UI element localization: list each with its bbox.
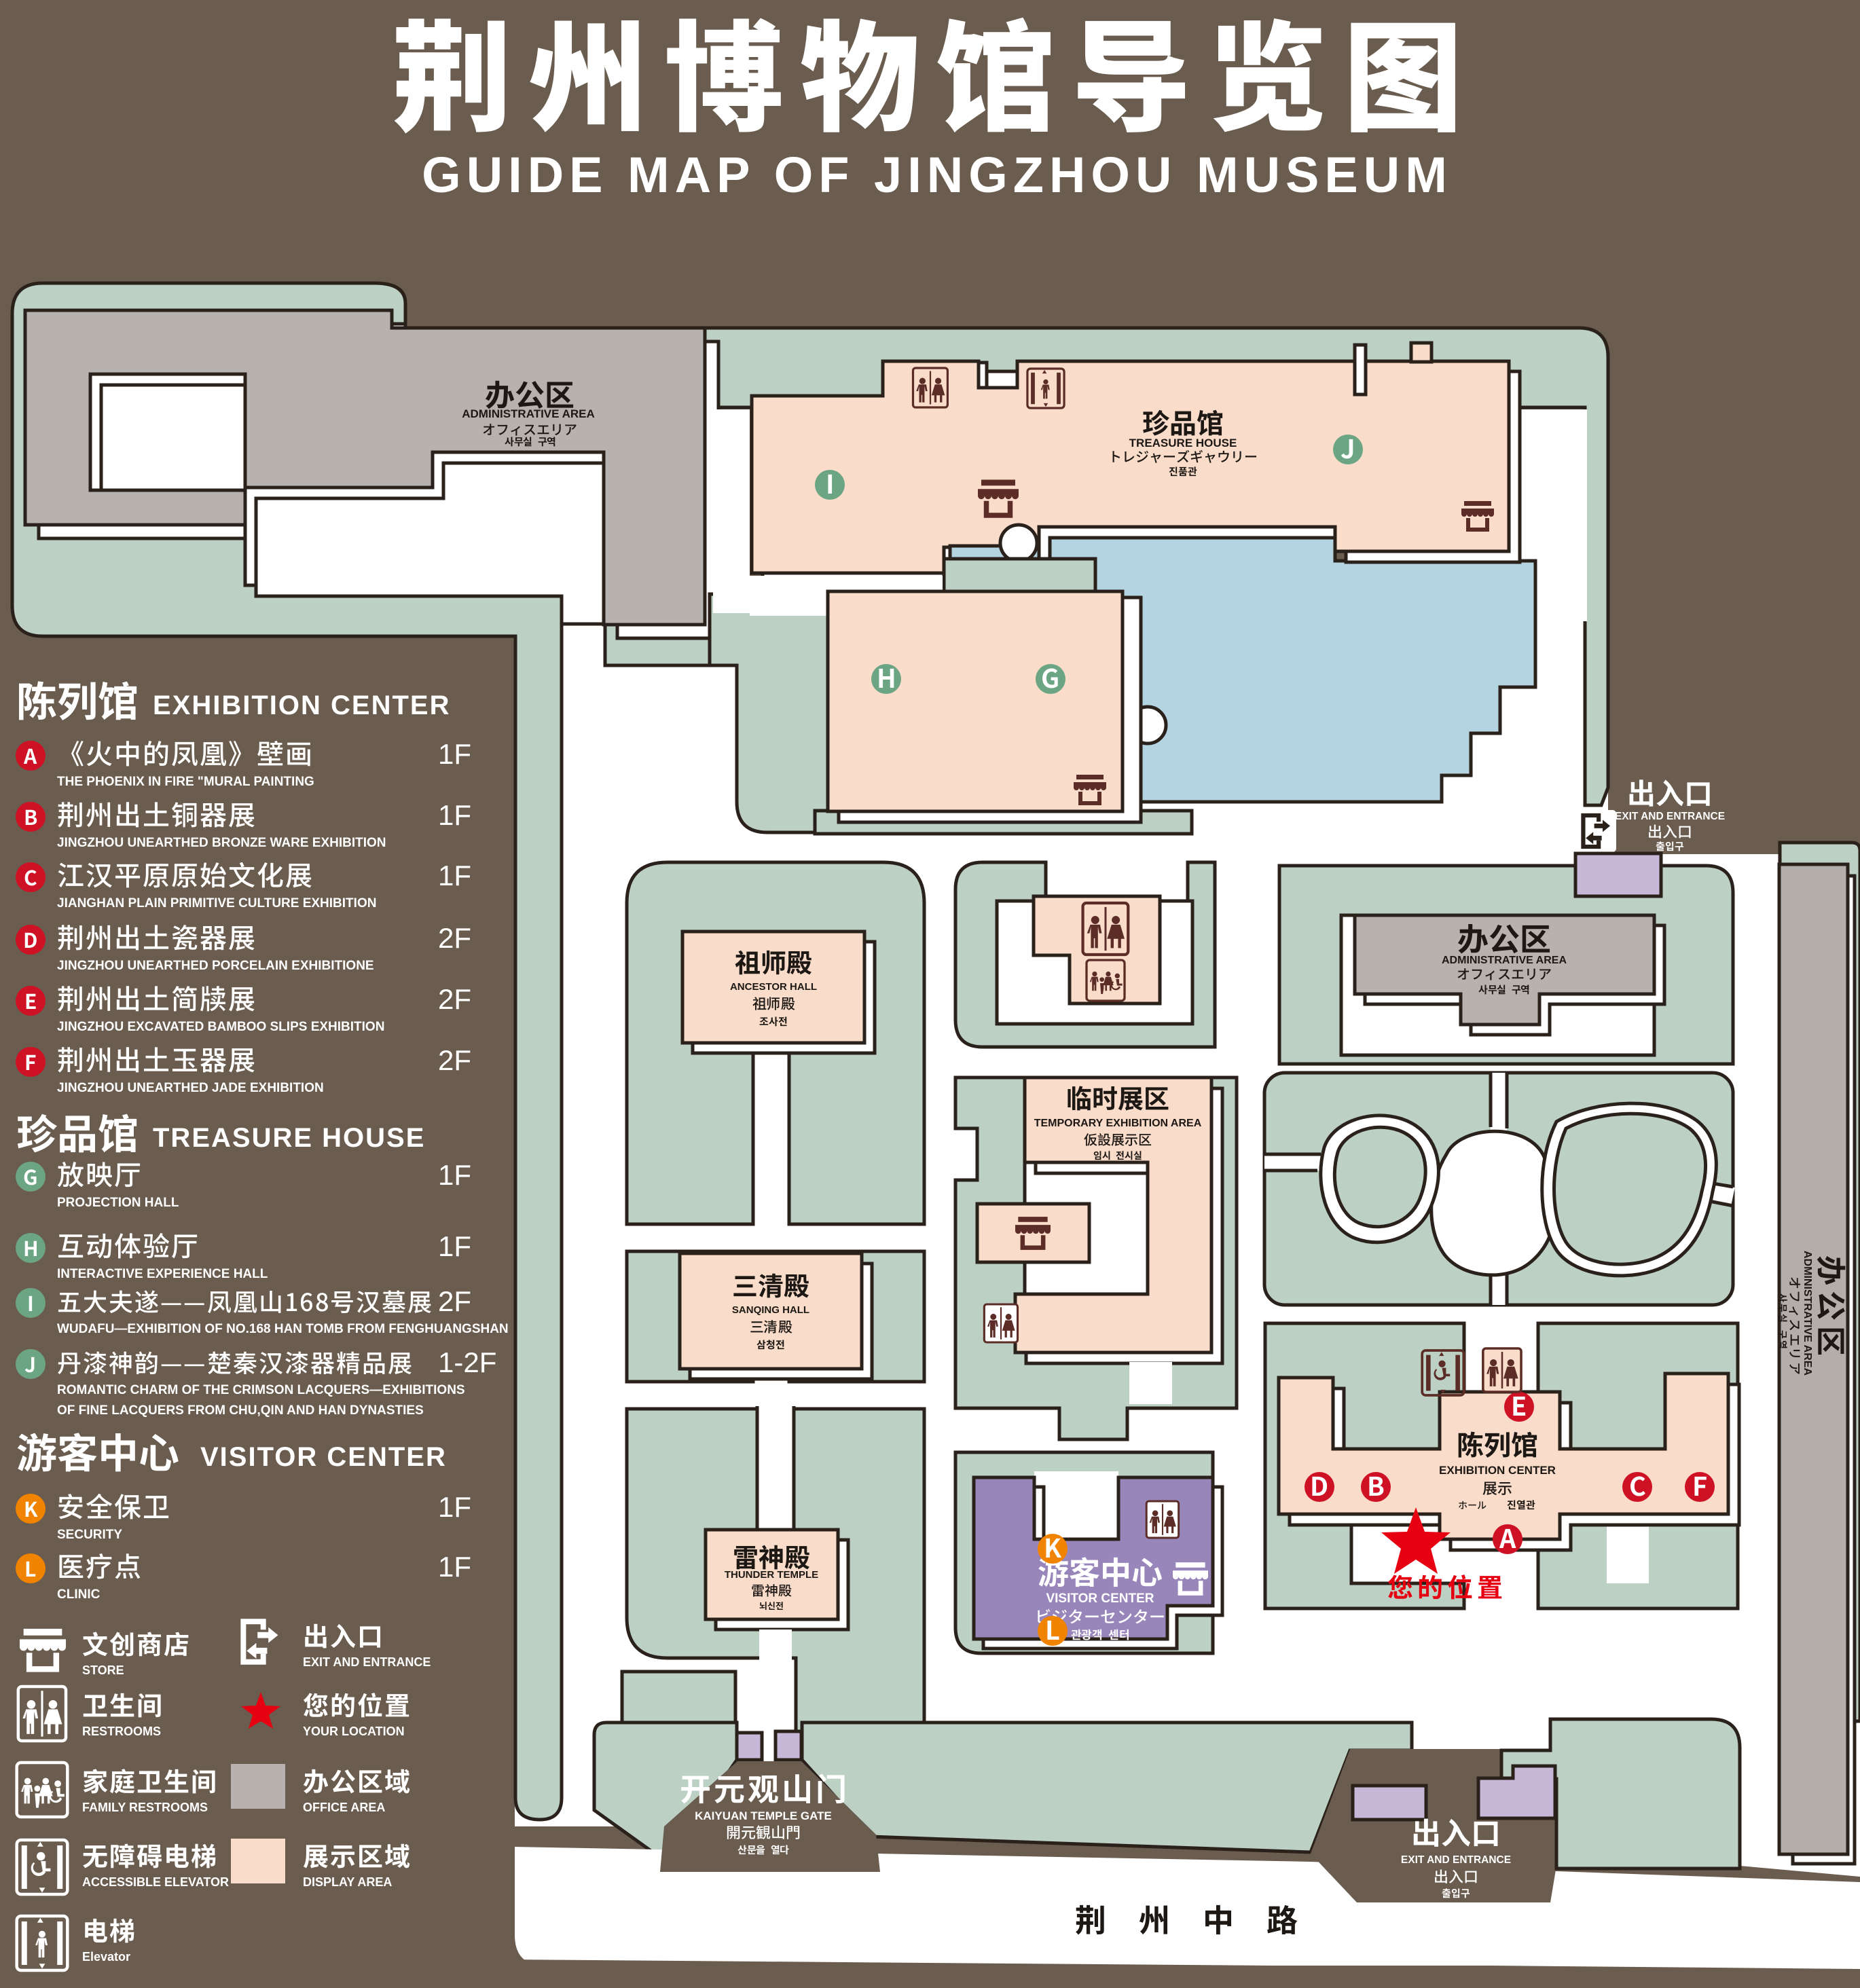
svg-text:GUIDE MAP OF JINGZHOU MUSEUM: GUIDE MAP OF JINGZHOU MUSEUM xyxy=(422,147,1453,203)
svg-text:2F: 2F xyxy=(438,1044,471,1076)
svg-text:TEMPORARY EXHIBITION AREA: TEMPORARY EXHIBITION AREA xyxy=(1034,1118,1202,1129)
svg-text:ADMINISTRATIVE AREA: ADMINISTRATIVE AREA xyxy=(1442,955,1567,966)
svg-text:JINGZHOU UNEARTHED BRONZE WARE: JINGZHOU UNEARTHED BRONZE WARE EXHIBITIO… xyxy=(57,836,386,850)
svg-text:JIANGHAN PLAIN PRIMITIVE CULTU: JIANGHAN PLAIN PRIMITIVE CULTURE EXHIBIT… xyxy=(57,896,376,910)
svg-text:INTERACTIVE EXPERIENCE HALL: INTERACTIVE EXPERIENCE HALL xyxy=(57,1267,268,1281)
svg-text:SANQING HALL: SANQING HALL xyxy=(732,1304,809,1316)
svg-text:ADMINISTRATIVE AREA: ADMINISTRATIVE AREA xyxy=(1802,1251,1813,1376)
svg-text:1-2F: 1-2F xyxy=(438,1346,496,1378)
svg-text:2F: 2F xyxy=(438,922,471,954)
svg-text:YOUR LOCATION: YOUR LOCATION xyxy=(303,1725,405,1738)
svg-text:VISITOR CENTER: VISITOR CENTER xyxy=(200,1442,447,1472)
svg-text:ADMINISTRATIVE AREA: ADMINISTRATIVE AREA xyxy=(462,407,595,420)
svg-text:FAMILY RESTROOMS: FAMILY RESTROOMS xyxy=(82,1801,208,1814)
svg-text:STORE: STORE xyxy=(82,1663,124,1677)
svg-text:SECURITY: SECURITY xyxy=(57,1528,122,1542)
svg-text:JINGZHOU UNEARTHED JADE EXHIBI: JINGZHOU UNEARTHED JADE EXHIBITION xyxy=(57,1081,324,1095)
svg-text:2F: 2F xyxy=(438,983,471,1015)
svg-text:1F: 1F xyxy=(438,1551,471,1583)
svg-text:THUNDER TEMPLE: THUNDER TEMPLE xyxy=(725,1569,818,1581)
svg-text:PROJECTION HALL: PROJECTION HALL xyxy=(57,1196,179,1210)
svg-text:ACCESSIBLE ELEVATOR: ACCESSIBLE ELEVATOR xyxy=(82,1875,229,1889)
svg-text:TREASURE HOUSE: TREASURE HOUSE xyxy=(1129,437,1237,449)
svg-text:EXHIBITION CENTER: EXHIBITION CENTER xyxy=(153,691,450,720)
svg-text:2F: 2F xyxy=(438,1285,471,1317)
svg-text:Elevator: Elevator xyxy=(82,1950,130,1964)
svg-text:EXIT AND ENTRANCE: EXIT AND ENTRANCE xyxy=(303,1655,431,1669)
svg-text:CLINIC: CLINIC xyxy=(57,1587,101,1602)
svg-text:ROMANTIC CHARM OF THE CRIMSON: ROMANTIC CHARM OF THE CRIMSON LACQUERS—E… xyxy=(57,1383,465,1397)
svg-text:1F: 1F xyxy=(438,1230,471,1262)
svg-text:RESTROOMS: RESTROOMS xyxy=(82,1725,161,1738)
svg-text:EXIT AND ENTRANCE: EXIT AND ENTRANCE xyxy=(1615,811,1725,822)
svg-text:EXIT AND ENTRANCE: EXIT AND ENTRANCE xyxy=(1401,1854,1511,1866)
svg-text:DISPLAY AREA: DISPLAY AREA xyxy=(303,1875,392,1889)
svg-text:JINGZHOU EXCAVATED BAMBOO SLIP: JINGZHOU EXCAVATED BAMBOO SLIPS EXHIBITI… xyxy=(57,1020,384,1034)
svg-text:OF FINE LACQUERS FROM CHU,QIN: OF FINE LACQUERS FROM CHU,QIN AND HAN DY… xyxy=(57,1403,424,1418)
svg-text:1F: 1F xyxy=(438,860,471,891)
svg-text:THE PHOENIX IN FIRE "MURAL PAI: THE PHOENIX IN FIRE "MURAL PAINTING xyxy=(57,775,314,789)
svg-text:JINGZHOU UNEARTHED PORCELAIN E: JINGZHOU UNEARTHED PORCELAIN EXHIBITIONE xyxy=(57,959,374,973)
svg-text:WUDAFU—EXHIBITION OF NO.168 HA: WUDAFU—EXHIBITION OF NO.168 HAN TOMB FRO… xyxy=(57,1322,509,1336)
svg-text:VISITOR CENTER: VISITOR CENTER xyxy=(1046,1591,1154,1606)
svg-text:1F: 1F xyxy=(438,738,471,770)
svg-text:ANCESTOR HALL: ANCESTOR HALL xyxy=(730,981,817,993)
svg-text:TREASURE HOUSE: TREASURE HOUSE xyxy=(153,1123,425,1153)
svg-text:EXHIBITION CENTER: EXHIBITION CENTER xyxy=(1439,1464,1556,1477)
svg-text:1F: 1F xyxy=(438,799,471,831)
svg-text:KAIYUAN TEMPLE GATE: KAIYUAN TEMPLE GATE xyxy=(695,1809,832,1822)
svg-text:1F: 1F xyxy=(438,1159,471,1191)
svg-text:OFFICE AREA: OFFICE AREA xyxy=(303,1801,385,1814)
svg-text:1F: 1F xyxy=(438,1491,471,1523)
